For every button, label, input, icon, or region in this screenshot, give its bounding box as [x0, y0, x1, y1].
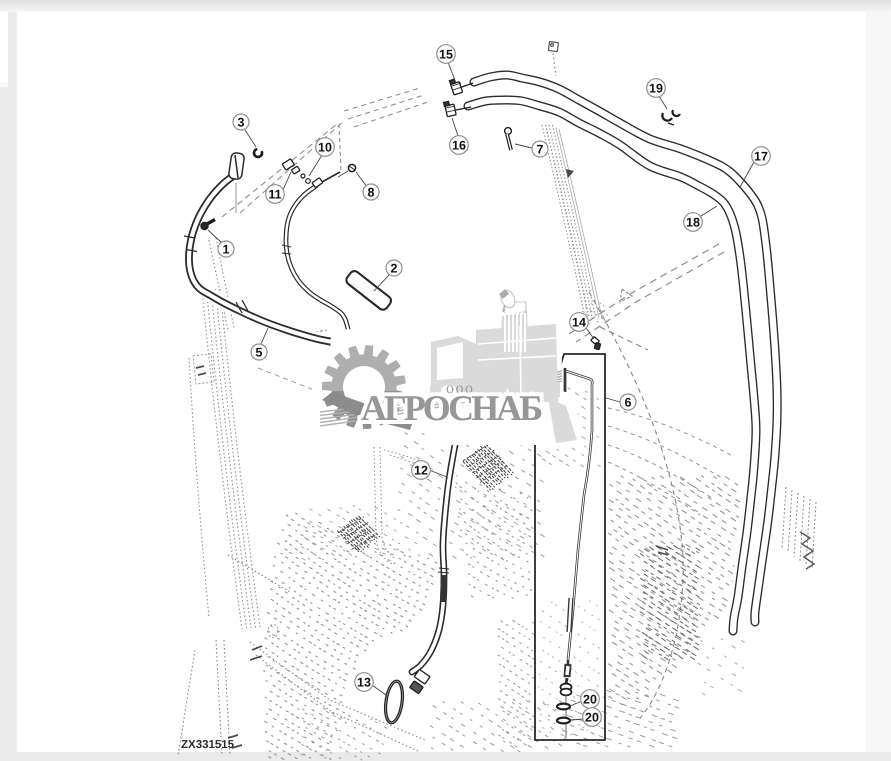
svg-text:10: 10 [318, 140, 332, 154]
svg-text:1: 1 [223, 242, 230, 256]
svg-text:12: 12 [414, 463, 428, 477]
svg-text:14: 14 [572, 315, 586, 329]
svg-text:7: 7 [537, 142, 544, 156]
svg-text:20: 20 [585, 710, 599, 724]
svg-text:5: 5 [256, 345, 263, 359]
svg-text:ZX331515: ZX331515 [181, 739, 235, 751]
svg-text:19: 19 [649, 81, 663, 95]
svg-text:20: 20 [583, 692, 597, 706]
svg-text:8: 8 [368, 185, 375, 199]
svg-text:АГРОСНАБ: АГРОСНАБ [361, 388, 543, 428]
svg-text:18: 18 [686, 215, 700, 229]
svg-text:15: 15 [439, 47, 453, 61]
svg-text:17: 17 [754, 149, 768, 163]
svg-text:6: 6 [625, 395, 632, 409]
svg-text:2: 2 [391, 261, 398, 275]
svg-text:16: 16 [452, 138, 466, 152]
svg-text:11: 11 [268, 187, 281, 201]
svg-text:13: 13 [357, 675, 371, 689]
svg-text:3: 3 [238, 115, 245, 129]
